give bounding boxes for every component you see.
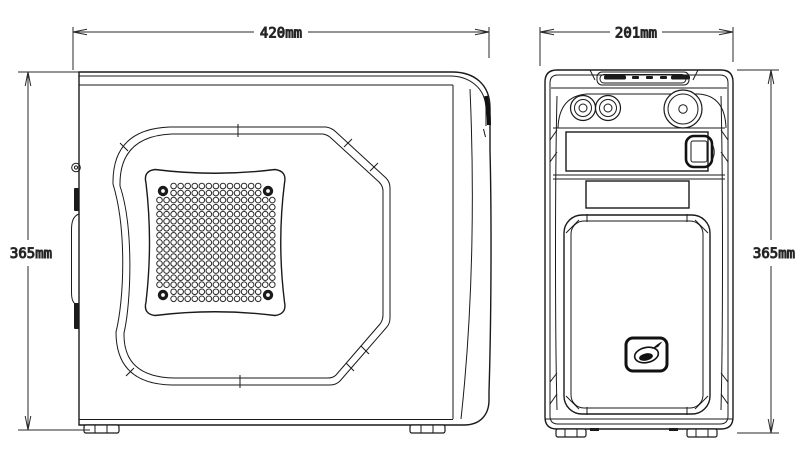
vent-hole [270, 247, 276, 253]
vent-hole [270, 197, 276, 203]
vent-hole [192, 261, 198, 267]
vent-hole [227, 197, 233, 203]
vent-hole [206, 233, 212, 239]
vent-hole [164, 240, 170, 246]
vent-hole [220, 247, 226, 253]
vent-hole [241, 190, 247, 196]
vent-hole [241, 183, 247, 189]
front-view [545, 70, 733, 437]
vent-hole [255, 233, 261, 239]
vent-hole [248, 275, 254, 281]
vent-hole [157, 282, 163, 288]
vent-hole [206, 218, 212, 224]
vent-hole [185, 226, 191, 232]
vent-hole [255, 240, 261, 246]
vent-hole [262, 197, 268, 203]
vent-hole [199, 268, 205, 274]
vent-hole [234, 282, 240, 288]
vent-hole [178, 254, 184, 260]
vent-hole [192, 190, 198, 196]
vent-hole [185, 190, 191, 196]
vent-hole [234, 204, 240, 210]
vent-hole [178, 190, 184, 196]
side-panel-outer-contour [113, 127, 390, 385]
vent-hole [185, 204, 191, 210]
vent-hole [164, 247, 170, 253]
vent-hole [185, 261, 191, 267]
front-width-label: 201mm [615, 26, 657, 42]
vent-hole [227, 275, 233, 281]
vent-hole [220, 183, 226, 189]
vent-hole [213, 211, 219, 217]
vent-hole [255, 282, 261, 288]
vent-hole [220, 289, 226, 295]
vent-hole [185, 233, 191, 239]
vent-hole [248, 226, 254, 232]
vent-hole [220, 268, 226, 274]
vent-hole [157, 233, 163, 239]
vent-hole [220, 296, 226, 302]
vent-hole [157, 211, 163, 217]
vent-hole [192, 247, 198, 253]
vent-hole [157, 240, 163, 246]
vent-hole [270, 233, 276, 239]
vent-hole [192, 211, 198, 217]
front-height-label: 365mm [753, 246, 795, 262]
vent-hole [192, 254, 198, 260]
vent-hole [255, 218, 261, 224]
vent-hole [248, 204, 254, 210]
vent-hole [241, 211, 247, 217]
vent-hole [248, 190, 254, 196]
vent-hole [171, 289, 177, 295]
vent-hole [227, 226, 233, 232]
vent-hole [248, 218, 254, 224]
vent-hole [234, 261, 240, 267]
vent-hole [262, 204, 268, 210]
vent-hole [241, 282, 247, 288]
dimension-420mm: 420mm [73, 26, 489, 71]
vent-hole [262, 261, 268, 267]
vent-hole [206, 275, 212, 281]
side-width-label: 420mm [260, 26, 302, 42]
vent-hole [164, 233, 170, 239]
vent-hole [185, 275, 191, 281]
vent-hole [192, 268, 198, 274]
vent-hole [185, 211, 191, 217]
vent-hole [171, 211, 177, 217]
vent-hole [220, 261, 226, 267]
vent-hole [157, 261, 163, 267]
vent-hole [227, 268, 233, 274]
vent-hole [171, 226, 177, 232]
vent-hole [206, 226, 212, 232]
vent-hole [241, 197, 247, 203]
vent-hole [270, 275, 276, 281]
vent-hole [164, 204, 170, 210]
vent-hole [164, 254, 170, 260]
vent-hole [262, 282, 268, 288]
dimension-drawing-page: 420mm 201mm 365mm 365mm [0, 0, 800, 469]
front-bezel-curve [461, 89, 472, 419]
vent-hole [227, 233, 233, 239]
vent-hole [157, 204, 163, 210]
panel-segment-ticks [120, 124, 378, 388]
vent-hole [206, 268, 212, 274]
vent-hole [262, 240, 268, 246]
small-bay-cover [586, 181, 689, 208]
vent-hole [199, 218, 205, 224]
vent-hole [248, 233, 254, 239]
vent-hole [213, 282, 219, 288]
vent-hole [213, 233, 219, 239]
vent-hole [164, 282, 170, 288]
vent-hole [220, 226, 226, 232]
vent-hole [171, 204, 177, 210]
vent-hole [192, 218, 198, 224]
vent-hole [248, 240, 254, 246]
vent-hole [206, 240, 212, 246]
vent-hole [213, 204, 219, 210]
vent-hole [178, 240, 184, 246]
vent-hole [199, 254, 205, 260]
vent-hole [270, 204, 276, 210]
vent-hole [255, 296, 261, 302]
vent-hole [234, 268, 240, 274]
vent-hole [270, 218, 276, 224]
vent-hole [220, 275, 226, 281]
vent-hole [220, 218, 226, 224]
vent-hole [171, 282, 177, 288]
vent-hole [185, 282, 191, 288]
vent-screw [158, 186, 168, 196]
vent-hole [255, 183, 261, 189]
vent-hole [241, 240, 247, 246]
vent-hole [171, 183, 177, 189]
vent-hole [270, 261, 276, 267]
vent-hole [241, 254, 247, 260]
vent-hole [206, 204, 212, 210]
vent-hole [199, 233, 205, 239]
vent-hole [199, 240, 205, 246]
vent-hole [262, 233, 268, 239]
vent-hole [234, 190, 240, 196]
vent-hole [213, 261, 219, 267]
vent-hole [178, 275, 184, 281]
vent-screw [263, 290, 273, 300]
vent-hole [185, 247, 191, 253]
dimension-365mm-right: 365mm [737, 70, 795, 433]
vent-hole [192, 275, 198, 281]
vent-hole [241, 261, 247, 267]
vent-hole [192, 296, 198, 302]
vent-hole [262, 268, 268, 274]
vent-hole [234, 289, 240, 295]
vent-hole [213, 254, 219, 260]
vent-hole [192, 240, 198, 246]
vent-hole [171, 197, 177, 203]
vent-hole [234, 254, 240, 260]
vent-hole [178, 197, 184, 203]
vent-hole [178, 282, 184, 288]
vent-hole [227, 218, 233, 224]
vent-hole [185, 296, 191, 302]
vent-hole [241, 247, 247, 253]
vent-hole [227, 254, 233, 260]
vent-hole [206, 197, 212, 203]
vent-hole [213, 190, 219, 196]
vent-hole [270, 282, 276, 288]
vent-hole [199, 296, 205, 302]
vent-hole [171, 261, 177, 267]
vent-hole [213, 289, 219, 295]
vent-hole [248, 247, 254, 253]
power-button [664, 90, 702, 128]
vent-hole [234, 211, 240, 217]
vent-hole [255, 261, 261, 267]
vent-hole [185, 289, 191, 295]
vent-hole [157, 226, 163, 232]
vent-hole [227, 183, 233, 189]
vent-hole [206, 282, 212, 288]
audio-jack-2 [596, 96, 621, 121]
vent-hole [234, 183, 240, 189]
vent-hole [234, 240, 240, 246]
vent-hole [220, 240, 226, 246]
vent-hole [171, 254, 177, 260]
vent-hole [206, 183, 212, 189]
vent-hole [171, 190, 177, 196]
vent-hole [270, 268, 276, 274]
vent-hole-grid [157, 183, 275, 301]
vent-hole [213, 275, 219, 281]
vent-hole [248, 211, 254, 217]
vent-hole [171, 247, 177, 253]
vent-hole [255, 190, 261, 196]
vent-hole [206, 289, 212, 295]
vent-hole [248, 261, 254, 267]
vent-hole [213, 268, 219, 274]
vent-hole [199, 261, 205, 267]
vent-hole [199, 247, 205, 253]
vent-hole [234, 296, 240, 302]
side-panel [113, 124, 390, 388]
top-io-recess [590, 70, 698, 85]
vent-hole [164, 226, 170, 232]
vent-hole [255, 211, 261, 217]
vent-hole [178, 261, 184, 267]
vent-hole [241, 296, 247, 302]
vent-hole [234, 197, 240, 203]
vent-hole [192, 226, 198, 232]
vent-hole [220, 211, 226, 217]
vent-hole [178, 226, 184, 232]
vent-hole [262, 218, 268, 224]
vent-hole [234, 233, 240, 239]
vent-hole [199, 197, 205, 203]
audio-jack-1 [571, 96, 596, 121]
top-io-dash-1 [632, 76, 639, 79]
vent-hole [213, 183, 219, 189]
vent-hole [199, 282, 205, 288]
vent-hole [262, 226, 268, 232]
vent-hole [157, 275, 163, 281]
vent-hole [234, 247, 240, 253]
top-io-dash-2 [646, 76, 653, 79]
vent-hole [185, 254, 191, 260]
vent-hole [220, 190, 226, 196]
vent-hole [248, 289, 254, 295]
vent-hole [185, 183, 191, 189]
vent-hole [199, 204, 205, 210]
vent-hole [164, 268, 170, 274]
vent-hole [220, 197, 226, 203]
rear-bracket [72, 214, 80, 306]
vent-hole [157, 197, 163, 203]
side-top-edge-line [79, 76, 486, 126]
vent-hole [270, 254, 276, 260]
vent-hole [185, 197, 191, 203]
vent-hole [164, 197, 170, 203]
vent-hole [178, 204, 184, 210]
vent-hole [192, 282, 198, 288]
vent-hole [178, 289, 184, 295]
vent-hole [213, 296, 219, 302]
vent-hole [206, 247, 212, 253]
vent-hole [199, 211, 205, 217]
vent-hole [255, 254, 261, 260]
vent-hole [185, 240, 191, 246]
vent-hole [248, 183, 254, 189]
dimension-201mm: 201mm [540, 26, 733, 67]
front-view-outline [545, 70, 733, 429]
vent-hole [171, 233, 177, 239]
rear-clip-bottom [74, 303, 79, 329]
vent-hole [234, 226, 240, 232]
vent-hole [213, 240, 219, 246]
vent-hole [213, 197, 219, 203]
vent-hole [164, 275, 170, 281]
vent-hole [178, 211, 184, 217]
vent-hole [255, 204, 261, 210]
vent-hole [171, 240, 177, 246]
vent-hole [171, 296, 177, 302]
vent-hole [234, 275, 240, 281]
vent-hole [178, 183, 184, 189]
vent-hole [234, 218, 240, 224]
vent-hole [227, 240, 233, 246]
vent-hole [262, 247, 268, 253]
vent-hole [171, 275, 177, 281]
vent-hole [157, 247, 163, 253]
usb-port [686, 136, 714, 167]
vent-hole [262, 211, 268, 217]
vent-hole [185, 268, 191, 274]
vent-hole [270, 226, 276, 232]
vent-hole [227, 190, 233, 196]
vent-hole [220, 204, 226, 210]
vent-hole [185, 218, 191, 224]
vent-hole [206, 211, 212, 217]
vent-hole [255, 197, 261, 203]
vent-hole [192, 204, 198, 210]
vent-hole [220, 282, 226, 288]
vent-hole [213, 218, 219, 224]
vent-hole [241, 226, 247, 232]
vent-hole [199, 183, 205, 189]
vent-hole [220, 254, 226, 260]
vent-hole [178, 233, 184, 239]
vent-hole [262, 275, 268, 281]
vent-hole [178, 218, 184, 224]
vent-hole [199, 226, 205, 232]
vent-hole [248, 296, 254, 302]
vent-hole [227, 261, 233, 267]
vent-hole [178, 296, 184, 302]
vent-hole [241, 268, 247, 274]
vent-hole [157, 268, 163, 274]
side-height-label: 365mm [10, 246, 52, 262]
brand-logo [626, 338, 667, 371]
vent-hole [241, 218, 247, 224]
side-view-outline [79, 72, 491, 425]
vent-hole [206, 261, 212, 267]
vent-hole [213, 247, 219, 253]
vent-hole [192, 183, 198, 189]
vent-hole [178, 247, 184, 253]
vent-hole [255, 268, 261, 274]
vent-hole [227, 204, 233, 210]
vent-hole [255, 226, 261, 232]
vent-hole [213, 226, 219, 232]
vent-hole [227, 247, 233, 253]
vent-hole [241, 233, 247, 239]
vent-hole [241, 289, 247, 295]
vent-hole [171, 268, 177, 274]
dimension-365mm-left: 365mm [10, 72, 90, 430]
vent-hole [192, 197, 198, 203]
vent-hole [255, 275, 261, 281]
vent-hole [206, 296, 212, 302]
vent-hole [164, 218, 170, 224]
vent-hole [248, 254, 254, 260]
vent-hole [241, 204, 247, 210]
vent-hole [192, 289, 198, 295]
side-view [72, 72, 492, 433]
vent-hole [220, 233, 226, 239]
vent-hole [227, 289, 233, 295]
vent-hole [206, 254, 212, 260]
panel-corner-ticks [566, 214, 708, 415]
vent-hole [248, 197, 254, 203]
technical-drawing: 420mm 201mm 365mm 365mm [0, 0, 800, 469]
vent-grille-panel [145, 170, 285, 316]
vent-hole [157, 218, 163, 224]
vent-hole [164, 261, 170, 267]
vent-hole [178, 268, 184, 274]
vent-hole [206, 190, 212, 196]
vent-hole [270, 240, 276, 246]
vent-screw [158, 290, 168, 300]
vent-hole [192, 233, 198, 239]
top-io-dash-3 [660, 76, 667, 79]
side-view-feet [84, 425, 445, 433]
vent-hole [199, 275, 205, 281]
vent-hole [227, 211, 233, 217]
vent-hole [157, 254, 163, 260]
vent-hole [227, 282, 233, 288]
lower-front-panel [564, 214, 710, 415]
